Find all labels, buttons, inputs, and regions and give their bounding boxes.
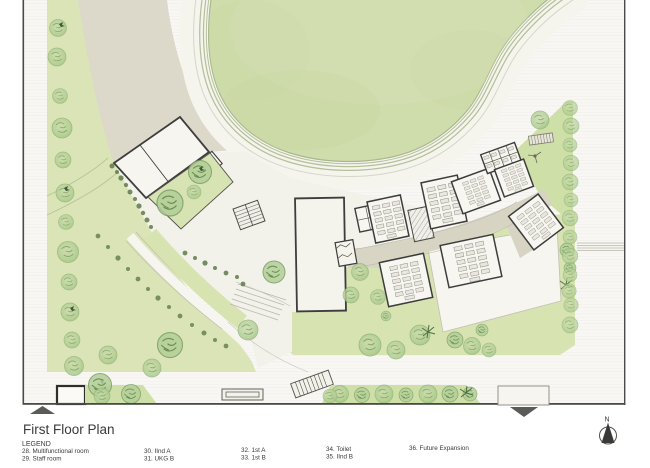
- svg-text:LEGEND: LEGEND: [22, 441, 51, 448]
- svg-text:N: N: [605, 417, 610, 424]
- svg-text:29. Staff room: 29. Staff room: [22, 456, 61, 463]
- svg-text:32. 1st A: 32. 1st A: [241, 447, 266, 454]
- svg-text:35. IInd B: 35. IInd B: [326, 454, 353, 461]
- svg-text:First Floor Plan: First Floor Plan: [23, 422, 115, 437]
- svg-text:30. IInd A: 30. IInd A: [144, 448, 171, 455]
- svg-text:31. UKG B: 31. UKG B: [144, 456, 174, 463]
- svg-text:36. Future Expansion: 36. Future Expansion: [409, 445, 469, 452]
- svg-text:28. Multifunctional room: 28. Multifunctional room: [22, 448, 89, 455]
- svg-text:33. 1st B: 33. 1st B: [241, 455, 266, 462]
- svg-text:34. Toilet: 34. Toilet: [326, 446, 351, 453]
